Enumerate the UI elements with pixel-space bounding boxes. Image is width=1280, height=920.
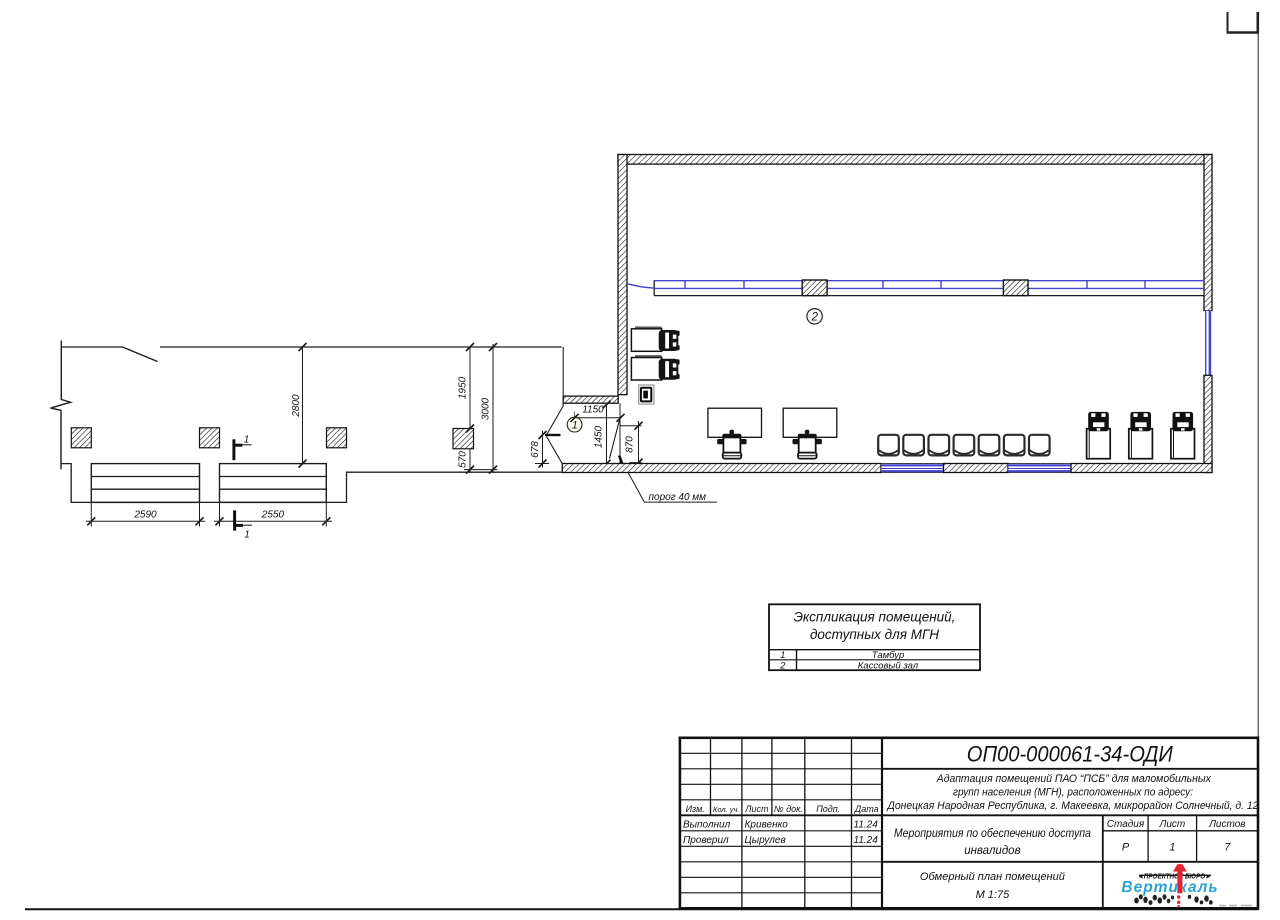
svg-text:Проверил: Проверил bbox=[683, 835, 729, 846]
svg-text:Стадия: Стадия bbox=[1107, 819, 1145, 830]
svg-text:Лист: Лист bbox=[744, 804, 769, 814]
svg-text:групп населения (МГН), располо: групп населения (МГН), расположенных по … bbox=[953, 786, 1193, 798]
svg-text:870: 870 bbox=[625, 436, 636, 453]
svg-text:Изм.: Изм. bbox=[686, 804, 705, 814]
svg-text:2: 2 bbox=[779, 660, 786, 671]
svg-text:инвалидов: инвалидов bbox=[964, 845, 1020, 857]
svg-text:1: 1 bbox=[244, 530, 250, 541]
svg-text:1450: 1450 bbox=[593, 425, 604, 448]
svg-text:Кассовый зал: Кассовый зал bbox=[858, 660, 919, 671]
svg-text:Дата: Дата bbox=[854, 804, 879, 814]
svg-text:Вертикаль: Вертикаль bbox=[1121, 879, 1218, 896]
svg-text:2550: 2550 bbox=[261, 510, 285, 521]
svg-text:ОП00-000061-34-ОДИ: ОП00-000061-34-ОДИ bbox=[967, 742, 1173, 767]
svg-text:570: 570 bbox=[458, 451, 469, 468]
svg-text:2: 2 bbox=[811, 312, 819, 324]
svg-text:№ док.: № док. bbox=[774, 804, 803, 814]
svg-text:Подп.: Подп. bbox=[816, 804, 840, 814]
svg-text:Адаптация помещений ПАО “ПСБ”: Адаптация помещений ПАО “ПСБ” для маломо… bbox=[936, 773, 1211, 785]
svg-text:Цырулев: Цырулев bbox=[745, 835, 786, 846]
svg-text:11.24: 11.24 bbox=[854, 835, 879, 846]
svg-text:1: 1 bbox=[1169, 841, 1175, 853]
svg-text:11.24: 11.24 bbox=[854, 820, 879, 831]
svg-text:доступных для МГН: доступных для МГН bbox=[810, 627, 939, 642]
svg-text:Лист: Лист bbox=[1159, 819, 1186, 830]
svg-text:Кол. уч.: Кол. уч. bbox=[713, 805, 740, 814]
svg-text:Р: Р bbox=[1122, 841, 1130, 853]
svg-text:Донецкая Народная Республика,: Донецкая Народная Республика, г. Макеевк… bbox=[886, 800, 1260, 812]
svg-text:М 1:75: М 1:75 bbox=[976, 889, 1011, 901]
svg-text:Выполнил: Выполнил bbox=[683, 820, 731, 831]
svg-text:1: 1 bbox=[244, 435, 250, 446]
svg-text:Экспликация помещений,: Экспликация помещений, bbox=[794, 610, 956, 625]
svg-text:3000: 3000 bbox=[481, 397, 492, 420]
svg-text:7: 7 bbox=[1224, 841, 1231, 853]
svg-text:1950: 1950 bbox=[458, 376, 469, 399]
svg-text:порог 40 мм: порог 40 мм bbox=[649, 492, 707, 503]
svg-text:678: 678 bbox=[530, 441, 541, 458]
svg-text:2590: 2590 bbox=[133, 510, 157, 521]
svg-text:Кривенко: Кривенко bbox=[745, 820, 789, 831]
svg-text:2800: 2800 bbox=[291, 394, 302, 418]
svg-text:1150: 1150 bbox=[582, 405, 604, 416]
svg-text:Мероприятия по обеспечению дос: Мероприятия по обеспечению доступа bbox=[894, 828, 1091, 840]
svg-text:Листов: Листов bbox=[1208, 819, 1245, 830]
svg-text:1: 1 bbox=[572, 420, 578, 432]
svg-text:Обмерный план помещений: Обмерный план помещений bbox=[920, 871, 1065, 883]
